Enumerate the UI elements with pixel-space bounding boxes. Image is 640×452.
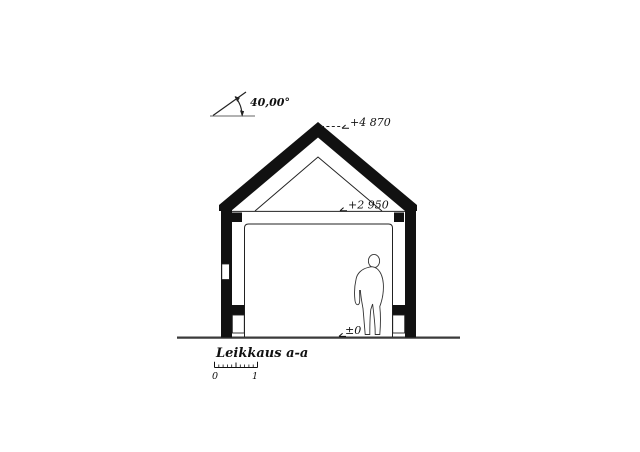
right-floor-slab bbox=[393, 305, 406, 315]
human-figure-head bbox=[368, 254, 379, 267]
human-figure bbox=[355, 254, 384, 334]
right-wall-plate-block bbox=[394, 213, 404, 223]
roof-angle-symbol: 40,00° bbox=[210, 92, 290, 117]
level-tick-ceiling bbox=[340, 208, 347, 211]
ridge-level-label: +4 870 bbox=[350, 116, 391, 129]
level-tick-ridge bbox=[342, 125, 349, 128]
scale-bar: 0 1 bbox=[212, 362, 258, 382]
drawing-title: Leikkaus a-a bbox=[215, 346, 308, 361]
right-foundation bbox=[393, 315, 405, 333]
level-annotation-floor: ±0 bbox=[339, 324, 361, 337]
left-wall-opening bbox=[222, 264, 230, 280]
section-drawing-page: 40,00° bbox=[0, 0, 640, 452]
scale-start-label: 0 bbox=[212, 371, 218, 382]
ceiling-level-label: +2 950 bbox=[348, 199, 389, 212]
section-drawing-canvas: 40,00° bbox=[0, 0, 640, 452]
left-floor-slab bbox=[232, 305, 245, 315]
right-wall bbox=[405, 204, 416, 338]
floor-level-label: ±0 bbox=[345, 324, 361, 337]
level-annotation-ceiling: +2 950 bbox=[340, 199, 389, 212]
level-annotation-ridge: +4 870 bbox=[342, 116, 391, 129]
left-wall-plate-block bbox=[232, 213, 242, 223]
roof-angle-label: 40,00° bbox=[250, 96, 290, 109]
scale-end-label: 1 bbox=[252, 371, 258, 382]
left-foundation bbox=[232, 315, 244, 333]
